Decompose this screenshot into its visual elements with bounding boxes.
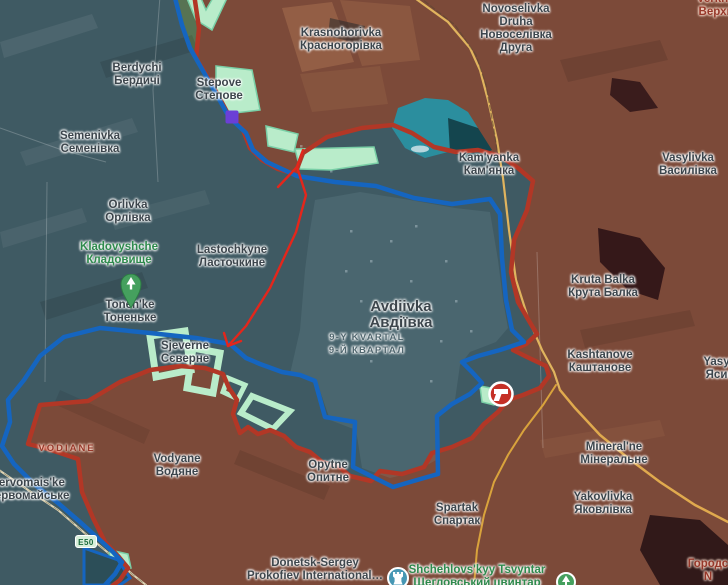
unit-square-marker[interactable] — [226, 111, 239, 124]
map-geometry — [0, 0, 728, 585]
road-shield-e50: E50 — [75, 535, 97, 548]
tree-circle-pin-icon — [554, 570, 578, 585]
firefight-gun-icon — [486, 379, 516, 409]
unit-square-icon — [226, 111, 239, 124]
tree-pin-icon — [118, 274, 144, 310]
map-canvas[interactable]: KrasnohorivkaКрасногорівкаNovoselivkaDru… — [0, 0, 728, 585]
rook-pin-icon — [385, 565, 411, 585]
